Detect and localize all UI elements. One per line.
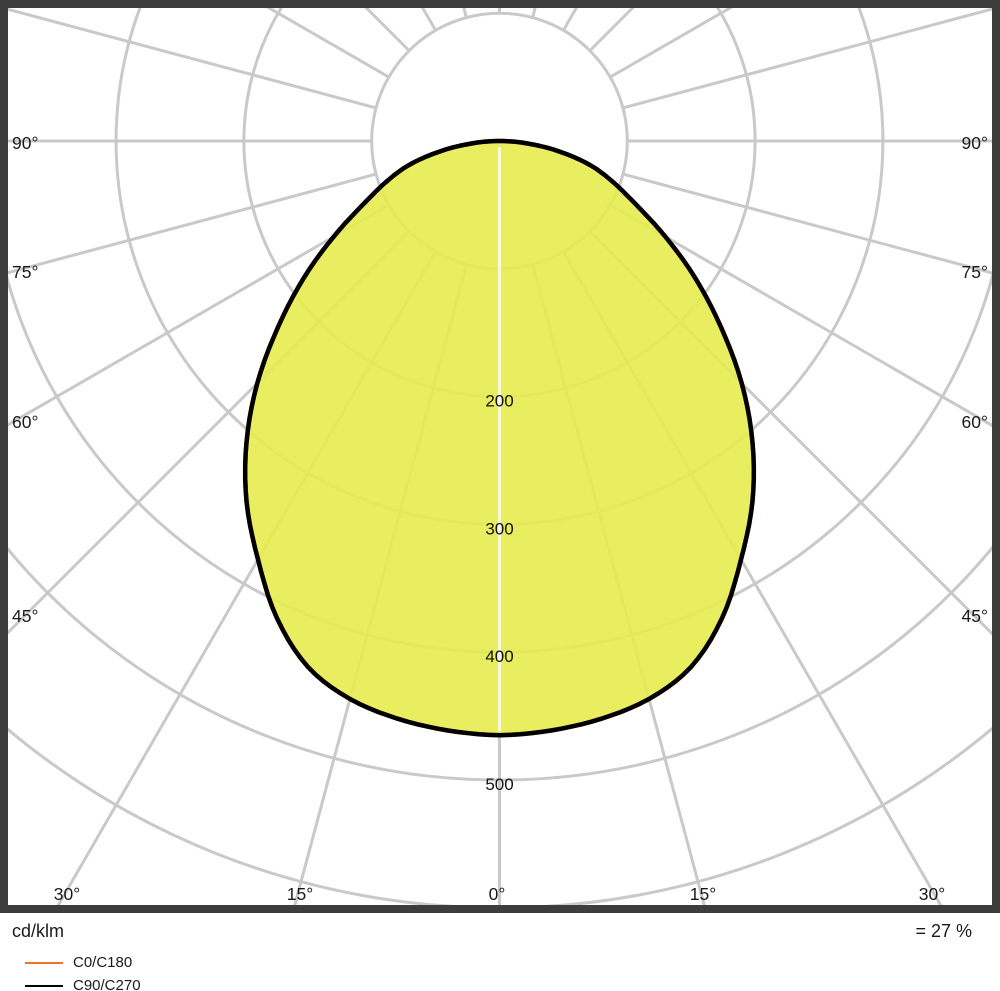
unit-label: cd/klm (12, 921, 64, 942)
angle-label-right: 60° (962, 412, 988, 432)
ring-value-label: 200 (485, 392, 513, 411)
angle-label-bottom: 0° (489, 884, 506, 904)
c0-line-swatch (25, 962, 63, 964)
angle-label-bottom: 30° (919, 884, 945, 904)
angle-label-bottom: 15° (287, 884, 313, 904)
ring-value-label: 500 (485, 775, 513, 794)
angle-label-bottom: 15° (690, 884, 716, 904)
angle-label-right: 75° (962, 262, 988, 282)
legend: C0/C180 C90/C270 (25, 951, 141, 991)
legend-item-c90: C90/C270 (25, 974, 141, 991)
angle-label-bottom: 30° (54, 884, 80, 904)
angle-label-right: 45° (962, 606, 988, 626)
c90-line-swatch (25, 985, 63, 987)
polar-chart: 20030040050090°90°75°75°60°60°45°45°30°1… (0, 0, 1000, 913)
angle-label-left: 90° (12, 133, 38, 153)
legend-label-c90: C90/C270 (73, 977, 141, 991)
angle-label-left: 60° (12, 412, 38, 432)
polar-chart-svg: 20030040050090°90°75°75°60°60°45°45°30°1… (0, 0, 1000, 913)
ring-value-label: 400 (485, 647, 513, 666)
chart-footer: cd/klm = 27 % C0/C180 C90/C270 (0, 913, 1000, 991)
light-output-ratio-label: = 27 % (915, 921, 972, 942)
photometric-diagram: 20030040050090°90°75°75°60°60°45°45°30°1… (0, 0, 1000, 991)
legend-label-c0: C0/C180 (73, 954, 132, 971)
ring-value-label: 300 (485, 519, 513, 538)
legend-item-c0: C0/C180 (25, 951, 141, 974)
angle-label-left: 45° (12, 606, 38, 626)
angle-label-right: 90° (962, 133, 988, 153)
angle-label-left: 75° (12, 262, 38, 282)
